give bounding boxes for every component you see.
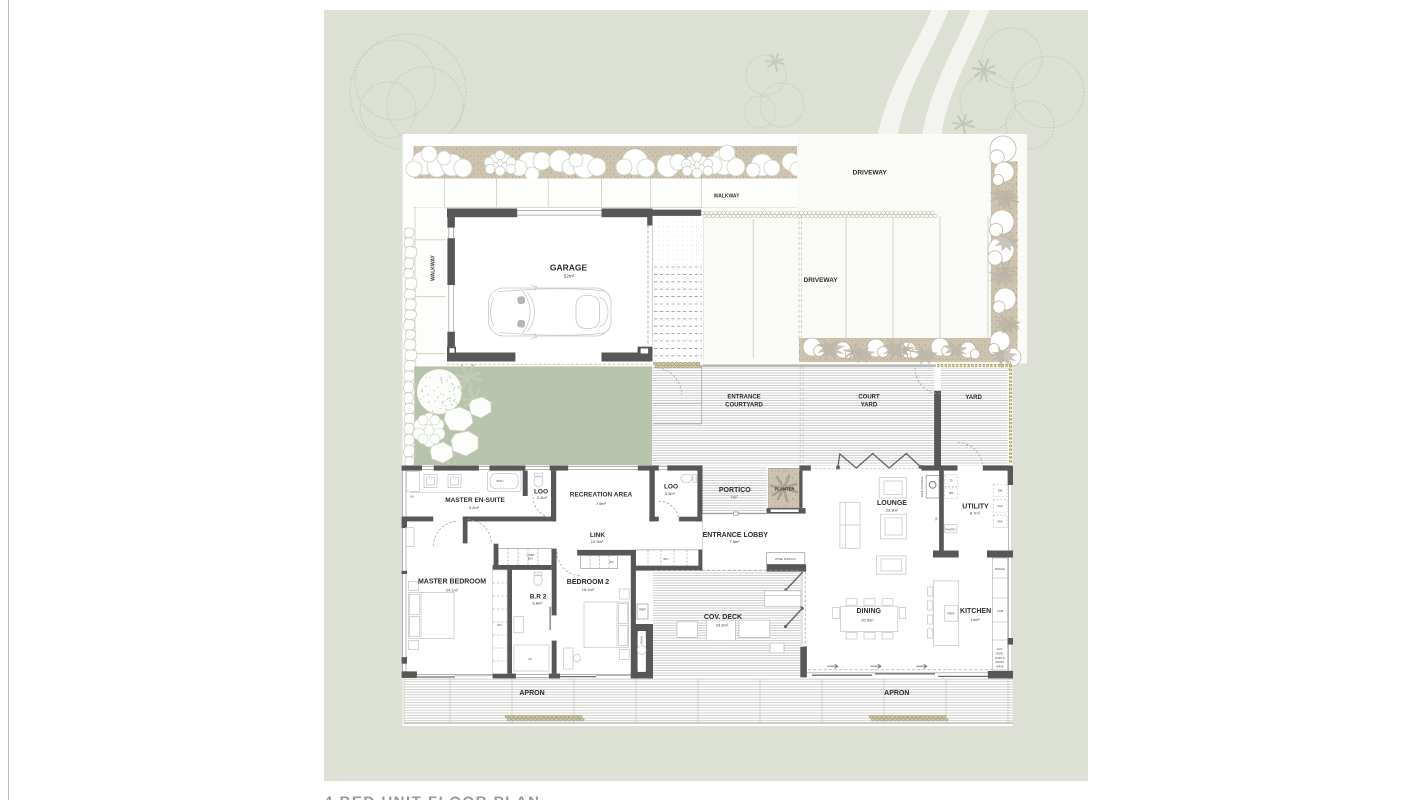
svg-text:YARD: YARD <box>965 395 982 401</box>
svg-text:DW: DW <box>998 489 1003 493</box>
svg-text:RECREATION AREA: RECREATION AREA <box>570 491 633 498</box>
svg-text:LEVEL: LEVEL <box>996 651 1005 655</box>
svg-text:FREE STANDING: FREE STANDING <box>920 477 924 498</box>
svg-text:BEDROOM 2: BEDROOM 2 <box>567 579 610 586</box>
svg-text:BATH: BATH <box>497 479 504 483</box>
svg-text:MICRO: MICRO <box>995 660 1004 664</box>
svg-text:20.5m²: 20.5m² <box>861 617 874 622</box>
svg-text:KITCHEN: KITCHEN <box>960 608 991 615</box>
svg-text:WINE DISPLAY: WINE DISPLAY <box>775 557 796 561</box>
svg-text:PANTRY: PANTRY <box>946 528 957 532</box>
svg-text:7m²: 7m² <box>731 495 739 500</box>
svg-text:COURT: COURT <box>858 394 880 400</box>
svg-text:OVEN &: OVEN & <box>995 656 1005 660</box>
svg-text:TV: TV <box>934 517 938 521</box>
svg-text:APRON: APRON <box>519 690 544 697</box>
svg-text:TD: TD <box>949 479 953 483</box>
svg-text:HOB: HOB <box>997 609 1003 613</box>
svg-text:PORTICO: PORTICO <box>719 487 751 494</box>
svg-text:DRIVEWAY: DRIVEWAY <box>853 170 888 177</box>
svg-text:APRON: APRON <box>884 690 909 697</box>
svg-text:COV. DECK: COV. DECK <box>704 614 742 621</box>
svg-text:WM: WM <box>949 491 954 495</box>
svg-text:COURTYARD: COURTYARD <box>725 402 763 408</box>
svg-text:9.2m²: 9.2m² <box>469 505 480 510</box>
svg-text:PLANTER: PLANTER <box>775 487 795 492</box>
svg-text:MASTER EN-SUITE: MASTER EN-SUITE <box>445 497 505 504</box>
svg-text:EYE: EYE <box>997 647 1002 651</box>
svg-text:52m²: 52m² <box>564 274 575 279</box>
svg-text:SNK: SNK <box>997 504 1003 508</box>
svg-text:LOUNGE: LOUNGE <box>877 500 907 507</box>
svg-text:YARD: YARD <box>861 402 878 408</box>
svg-text:B.R 2: B.R 2 <box>530 593 547 600</box>
svg-text:DRIVEWAY: DRIVEWAY <box>804 277 839 284</box>
svg-text:7.5m²: 7.5m² <box>596 501 607 506</box>
svg-text:LINEN: LINEN <box>527 553 535 557</box>
svg-text:LOO: LOO <box>664 484 678 491</box>
svg-text:3.5m²: 3.5m² <box>665 491 676 496</box>
svg-text:24.1m²: 24.1m² <box>446 587 459 592</box>
svg-text:SNK: SNK <box>997 519 1003 523</box>
svg-text:WALKWAY: WALKWAY <box>431 255 437 281</box>
svg-text:7.5m²: 7.5m² <box>729 539 740 544</box>
svg-text:SH: SH <box>528 657 532 661</box>
svg-text:BRAAI: BRAAI <box>639 636 643 644</box>
svg-text:4 BED UNIT FLOOR PLAN: 4 BED UNIT FLOOR PLAN <box>324 794 541 800</box>
svg-text:WALKWAY: WALKWAY <box>714 194 740 200</box>
svg-text:PREP: PREP <box>639 608 646 612</box>
svg-text:MASTER BEDROOM: MASTER BEDROOM <box>418 579 486 586</box>
svg-text:8.7m²: 8.7m² <box>970 510 981 515</box>
svg-text:15.1m²: 15.1m² <box>582 587 595 592</box>
svg-text:2.2m²: 2.2m² <box>537 495 548 500</box>
svg-text:SH: SH <box>410 495 414 499</box>
svg-text:10.9m²: 10.9m² <box>591 539 604 544</box>
svg-text:FRIDGE: FRIDGE <box>995 567 1005 571</box>
svg-text:6.8m²: 6.8m² <box>532 601 543 606</box>
svg-text:BKS: BKS <box>528 557 533 561</box>
svg-text:29.9m²: 29.9m² <box>716 622 729 627</box>
svg-text:14m²: 14m² <box>971 617 981 622</box>
svg-text:GARAGE: GARAGE <box>550 262 588 272</box>
svg-text:BIC: BIC <box>609 560 613 564</box>
svg-text:BIC: BIC <box>663 557 669 561</box>
svg-text:DINING: DINING <box>856 608 881 615</box>
svg-text:ENTRANCE: ENTRANCE <box>727 394 760 400</box>
svg-text:22.3m²: 22.3m² <box>886 507 899 512</box>
svg-text:WAVE: WAVE <box>996 665 1004 669</box>
svg-text:PREP: PREP <box>947 612 954 616</box>
svg-text:B/C: B/C <box>498 623 502 627</box>
